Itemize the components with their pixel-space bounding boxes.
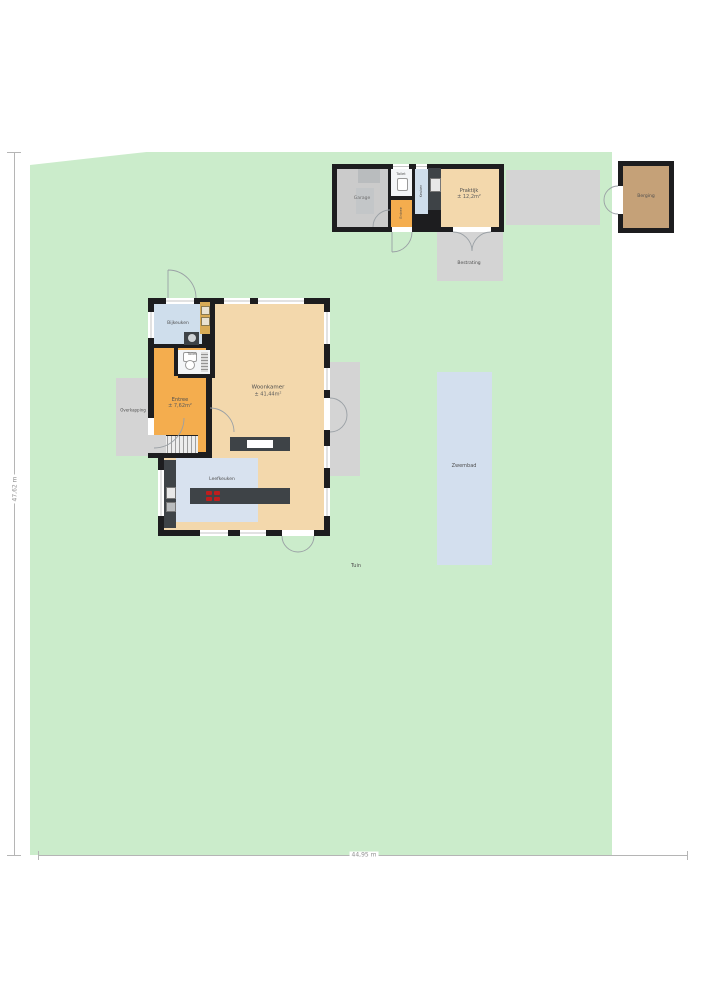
kitchen-island — [190, 488, 290, 504]
window-bottom-1 — [200, 530, 228, 536]
window-right-4 — [324, 488, 330, 516]
staircase — [164, 435, 198, 454]
outbuilding-toilet-fixture — [397, 178, 408, 191]
wall-entree-woonkamer-upper — [206, 378, 211, 408]
cabinet-appliance-1 — [201, 306, 210, 315]
wall-counter-sink — [166, 487, 176, 499]
window-bottom-2 — [240, 530, 266, 536]
dimension-tick-bottom-end — [687, 851, 688, 860]
window-top-2 — [224, 298, 250, 304]
dimension-tick-bottom-start — [38, 851, 39, 860]
dimension-tick-bottom-left — [7, 855, 21, 856]
wall-entree-woonkamer-lower — [206, 432, 211, 456]
outbuilding-window-top-1 — [393, 164, 409, 169]
outbuilding-keuken — [415, 169, 428, 214]
dimension-line-left — [14, 152, 15, 856]
berging-door-gap — [618, 186, 623, 214]
keuken-sink — [430, 178, 441, 192]
outbuilding-entree — [391, 200, 412, 227]
hob-burner-1 — [206, 491, 212, 495]
wall-below-bijkeuken — [154, 344, 210, 348]
cabinet-appliance-2 — [201, 317, 210, 326]
dimension-width-label: 44,95 m — [350, 852, 379, 859]
dimension-tick-top-left — [7, 152, 21, 153]
outbuilding-praktijk — [441, 169, 499, 227]
garage-mat-1 — [358, 169, 380, 183]
garden-door-gap — [282, 530, 314, 536]
terrace-right — [330, 362, 360, 476]
berging-floor — [623, 166, 669, 228]
outbuilding-door-gap-praktijk — [453, 227, 491, 232]
window-top-3 — [258, 298, 304, 304]
entrance-porch — [140, 435, 166, 453]
hob-burner-3 — [206, 497, 212, 501]
wall-left-of-toilet — [174, 348, 178, 376]
paving-right-of-outbuilding — [506, 170, 600, 225]
washer-door-icon — [188, 334, 196, 342]
hob-burner-4 — [214, 497, 220, 501]
paving-below-praktijk — [437, 231, 503, 281]
front-door-gap — [148, 418, 154, 435]
sideboard-inset — [247, 440, 273, 448]
dimension-height-label: 47,62 m — [12, 475, 19, 504]
window-left-bijkeuken — [148, 312, 154, 338]
outbuilding-door-gap-entree — [392, 227, 412, 232]
swimming-pool — [437, 372, 492, 565]
window-left-kitchen — [158, 470, 164, 516]
toilet-bowl-icon — [185, 360, 195, 370]
window-right-1 — [324, 312, 330, 344]
floorplan-canvas: 47,62 m 44,95 m Zwembad Bestrating Overk… — [0, 0, 707, 1000]
outbuilding-window-top-2 — [416, 164, 427, 169]
wall-counter-appliance — [166, 502, 176, 512]
hob-burner-2 — [214, 491, 220, 495]
window-top-1 — [166, 298, 194, 304]
toilet-radiator — [201, 352, 208, 372]
wall-right-of-bijkeuken — [210, 302, 215, 378]
garage-mat-2 — [356, 188, 374, 214]
